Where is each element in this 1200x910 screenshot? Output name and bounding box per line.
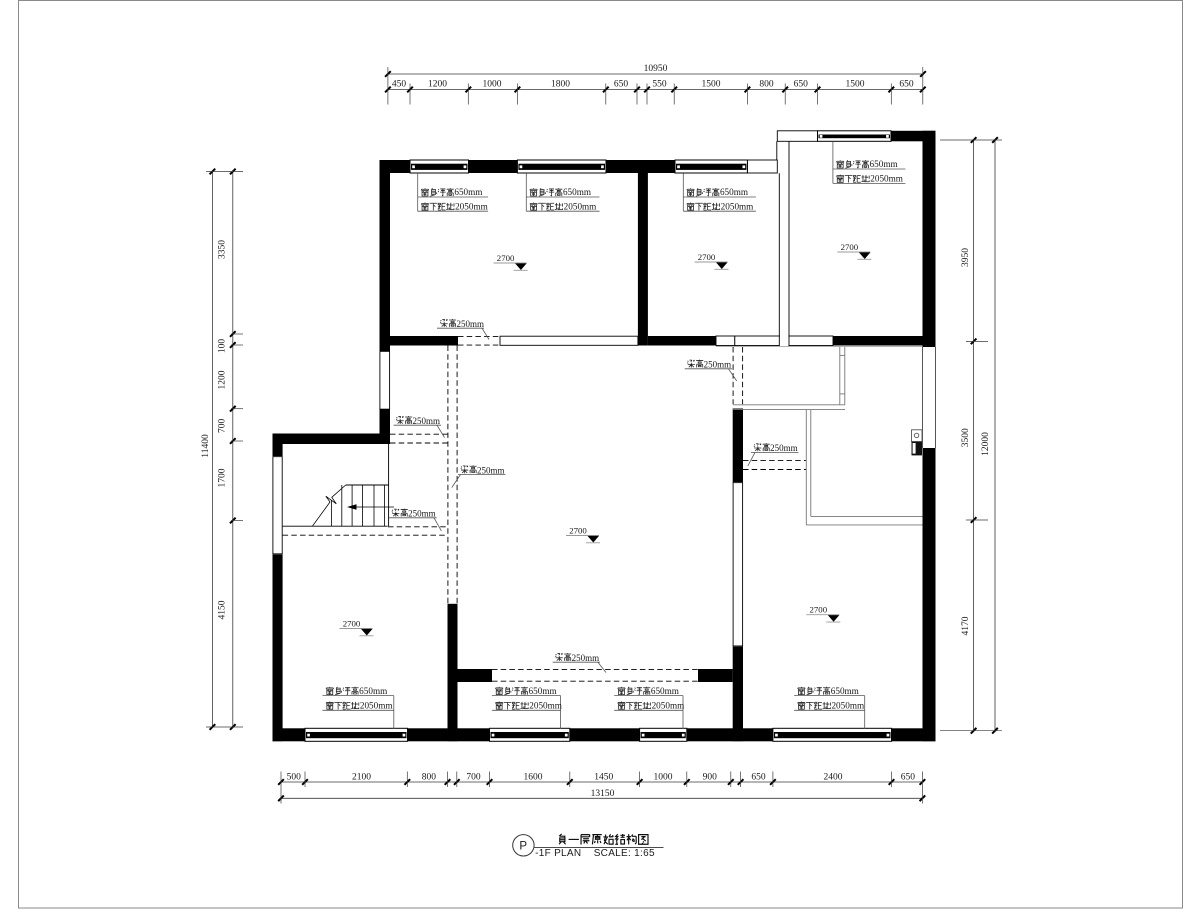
svg-text:650: 650 xyxy=(899,80,914,90)
svg-text:650mm: 650mm xyxy=(563,187,591,197)
svg-text:-1F PLAN SCALE: 1:65: -1F PLAN SCALE: 1:65 xyxy=(535,848,655,859)
svg-text:P: P xyxy=(519,841,527,853)
svg-text:800: 800 xyxy=(759,80,774,90)
svg-text:12000: 12000 xyxy=(981,432,991,456)
svg-text:650mm: 650mm xyxy=(720,187,748,197)
svg-text:1200: 1200 xyxy=(428,80,447,90)
svg-text:3500: 3500 xyxy=(961,428,971,447)
svg-text:2700: 2700 xyxy=(810,605,828,615)
svg-text:2100: 2100 xyxy=(352,772,371,782)
svg-text:11400: 11400 xyxy=(201,434,211,458)
svg-text:3950: 3950 xyxy=(961,248,971,267)
svg-text:1600: 1600 xyxy=(524,772,543,782)
svg-text:900: 900 xyxy=(703,772,718,782)
svg-text:2050mm: 2050mm xyxy=(831,701,864,711)
svg-text:2050mm: 2050mm xyxy=(870,174,903,184)
svg-text:1500: 1500 xyxy=(702,80,721,90)
svg-text:250mm: 250mm xyxy=(704,360,732,370)
svg-text:250mm: 250mm xyxy=(572,653,600,663)
svg-text:1200: 1200 xyxy=(217,370,227,389)
svg-text:2700: 2700 xyxy=(497,253,515,263)
svg-text:1700: 1700 xyxy=(217,468,227,487)
svg-text:2050mm: 2050mm xyxy=(455,201,488,211)
svg-text:250mm: 250mm xyxy=(770,443,798,453)
svg-text:450: 450 xyxy=(392,80,407,90)
svg-text:2050mm: 2050mm xyxy=(360,701,393,711)
svg-text:500: 500 xyxy=(287,772,302,782)
svg-text:650: 650 xyxy=(794,80,809,90)
svg-text:2050mm: 2050mm xyxy=(564,201,597,211)
svg-text:2400: 2400 xyxy=(824,772,843,782)
svg-text:650: 650 xyxy=(614,80,629,90)
svg-text:700: 700 xyxy=(466,772,481,782)
svg-text:1450: 1450 xyxy=(594,772,613,782)
svg-text:700: 700 xyxy=(217,419,227,434)
svg-text:3350: 3350 xyxy=(217,240,227,259)
svg-text:2050mm: 2050mm xyxy=(529,701,562,711)
svg-text:13150: 13150 xyxy=(591,789,615,799)
svg-text:800: 800 xyxy=(422,772,437,782)
svg-text:1000: 1000 xyxy=(483,80,502,90)
svg-text:650mm: 650mm xyxy=(454,187,482,197)
svg-text:550: 550 xyxy=(652,80,667,90)
svg-text:4150: 4150 xyxy=(217,600,227,619)
svg-text:650mm: 650mm xyxy=(831,686,859,696)
svg-text:4170: 4170 xyxy=(961,616,971,635)
svg-text:650: 650 xyxy=(751,772,766,782)
svg-text:1800: 1800 xyxy=(551,80,570,90)
svg-text:250mm: 250mm xyxy=(413,416,441,426)
svg-text:2700: 2700 xyxy=(698,252,716,262)
svg-text:1000: 1000 xyxy=(654,772,673,782)
svg-text:250mm: 250mm xyxy=(457,319,485,329)
svg-text:2050mm: 2050mm xyxy=(721,201,754,211)
svg-text:2700: 2700 xyxy=(343,619,361,629)
svg-text:250mm: 250mm xyxy=(408,509,436,519)
svg-text:650: 650 xyxy=(901,772,916,782)
svg-text:250mm: 250mm xyxy=(477,465,505,475)
svg-text:1500: 1500 xyxy=(846,80,865,90)
svg-text:2700: 2700 xyxy=(841,242,859,252)
svg-text:2050mm: 2050mm xyxy=(652,701,685,711)
svg-text:650mm: 650mm xyxy=(651,686,679,696)
svg-text:650mm: 650mm xyxy=(870,159,898,169)
svg-text:650mm: 650mm xyxy=(529,686,557,696)
svg-text:2700: 2700 xyxy=(569,526,587,536)
svg-text:100: 100 xyxy=(217,339,227,354)
svg-text:10950: 10950 xyxy=(644,64,668,74)
svg-text:650mm: 650mm xyxy=(359,686,387,696)
